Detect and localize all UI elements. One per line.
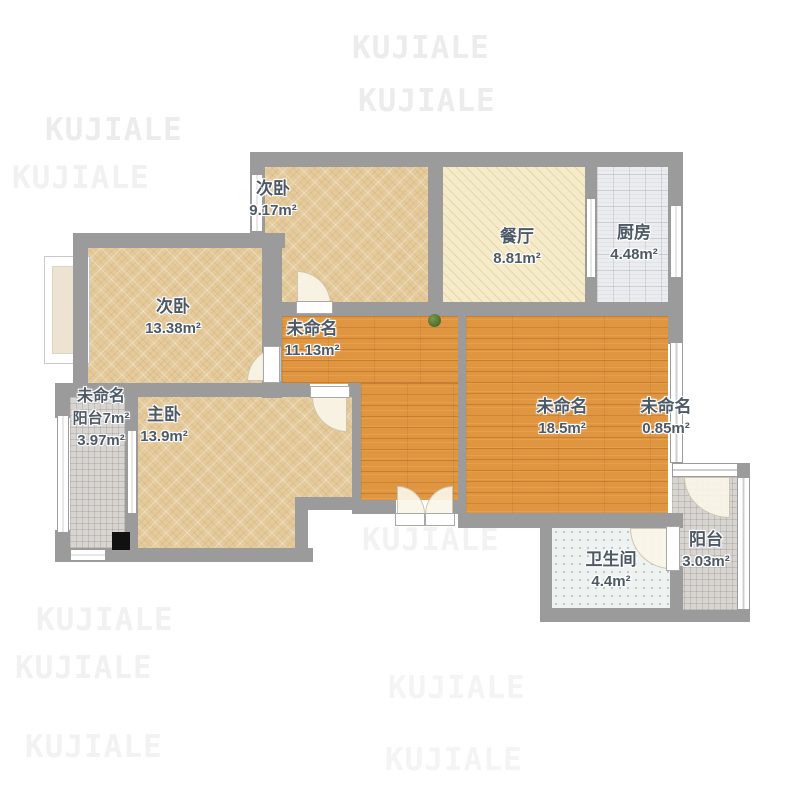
wall: [361, 500, 396, 514]
window[interactable]: [586, 198, 596, 278]
room-label-side-strip: 未命名 0.85m²: [641, 396, 692, 440]
wall: [540, 513, 552, 620]
kujiale-watermark: KUJIALE: [358, 83, 496, 119]
room-name: 次卧: [249, 178, 297, 200]
kujiale-watermark: KUJIALE: [36, 602, 174, 638]
wall: [672, 610, 750, 622]
room-name: 未命名: [641, 396, 692, 418]
kujiale-watermark: KUJIALE: [15, 650, 153, 686]
wall: [428, 166, 443, 303]
wall: [458, 316, 466, 514]
kujiale-watermark: KUJIALE: [12, 160, 150, 196]
room-label-bedroom-top: 次卧 9.17m²: [249, 178, 297, 222]
wall: [352, 383, 361, 514]
room-area: 13.38m²: [145, 318, 201, 340]
kujiale-watermark: KUJIALE: [45, 112, 183, 148]
room-label-bathroom: 卫生间 4.4m²: [586, 549, 637, 593]
window[interactable]: [737, 477, 750, 610]
room-name: 卫生间: [586, 549, 637, 571]
kujiale-watermark: KUJIALE: [388, 670, 526, 706]
room-floor-hallway-lower[interactable]: [361, 383, 458, 500]
room-name: 次卧: [145, 296, 201, 318]
room-name: 未命名: [537, 396, 588, 418]
room-label-hallway: 未命名 11.13m²: [284, 318, 339, 362]
door-leaf[interactable]: [263, 346, 280, 383]
room-name: 餐厅: [493, 226, 541, 248]
room-label-master: 主卧 13.9m²: [140, 404, 188, 448]
door-leaf[interactable]: [296, 301, 333, 314]
room-area: 4.4m²: [586, 571, 637, 593]
room-label-balcony-right: 阳台 3.03m²: [682, 529, 730, 573]
wall: [73, 233, 285, 248]
wall: [55, 530, 70, 562]
room-name: 主卧: [140, 404, 188, 426]
wall: [540, 608, 683, 622]
room-sublabel: 阳台7m²: [73, 408, 130, 430]
room-name: 未命名: [284, 318, 339, 340]
wall: [73, 233, 88, 393]
window[interactable]: [57, 415, 69, 533]
column-marker: [112, 532, 130, 550]
room-area: 0.85m²: [641, 418, 692, 440]
room-area: 3.03m²: [682, 551, 730, 573]
door-leaf[interactable]: [310, 386, 350, 398]
room-name: 未命名: [73, 386, 130, 408]
wall: [55, 383, 70, 418]
room-area: 9.17m²: [249, 200, 297, 222]
room-area: 4.48m²: [610, 244, 658, 266]
room-label-bedroom-left: 次卧 13.38m²: [145, 296, 201, 340]
wall: [670, 566, 683, 612]
kujiale-watermark: KUJIALE: [385, 742, 523, 778]
room-label-balcony-left: 未命名 阳台7m² 3.97m²: [73, 386, 130, 452]
kujiale-watermark: KUJIALE: [352, 30, 490, 66]
room-area: 8.81m²: [493, 248, 541, 270]
entry-door-leaf[interactable]: [395, 513, 455, 526]
window[interactable]: [70, 549, 106, 561]
room-label-dining: 餐厅 8.81m²: [493, 226, 541, 270]
room-name: 厨房: [610, 222, 658, 244]
window[interactable]: [672, 463, 738, 477]
room-label-kitchen: 厨房 4.48m²: [610, 222, 658, 266]
room-area: 13.9m²: [140, 426, 188, 448]
plant-icon: [428, 314, 441, 327]
room-area: 3.97m²: [73, 430, 130, 452]
wall: [458, 513, 683, 528]
door-leaf[interactable]: [666, 526, 680, 571]
room-label-living: 未命名 18.5m²: [537, 396, 588, 440]
kujiale-watermark: KUJIALE: [25, 729, 163, 765]
room-area: 18.5m²: [537, 418, 588, 440]
window[interactable]: [670, 205, 682, 278]
floor-plan-canvas: KUJIALE KUJIALE KUJIALE KUJIALE KUJIALE …: [0, 0, 800, 800]
room-name: 阳台: [682, 529, 730, 551]
wall: [250, 152, 683, 167]
room-area: 11.13m²: [284, 340, 339, 362]
